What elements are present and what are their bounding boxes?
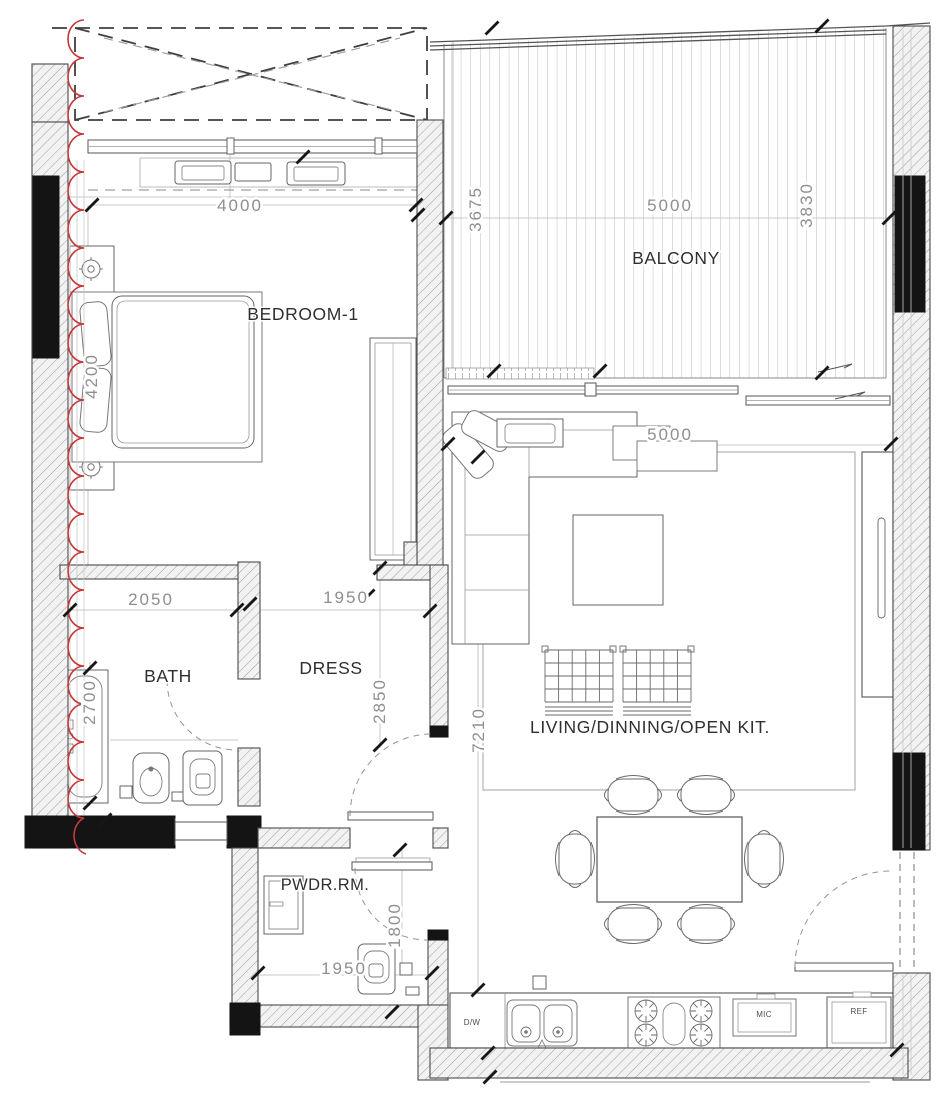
corridor-door-arc (350, 734, 432, 816)
column-black (430, 726, 448, 737)
floor-plan-sheet: BEDROOM-1 BALCONY BATH DRESS LIVING/DINN… (0, 0, 949, 1108)
wall-bath-east (238, 748, 260, 806)
wardrobe (370, 338, 416, 560)
living-label: LIVING/DINNING/OPEN KIT. (530, 717, 770, 737)
microwave-label: MIC (756, 1010, 772, 1019)
wall-powder-west (232, 848, 258, 1007)
floor-drain-symbol (406, 987, 419, 995)
refrigerator-label: REF (851, 1007, 868, 1016)
coffee-table (573, 515, 663, 605)
dim-dress-depth: 2850 (370, 678, 389, 724)
column-black (428, 930, 448, 940)
corridor-door-leaf (348, 812, 433, 820)
dining-chair (678, 776, 735, 815)
balcony-label: BALCONY (632, 248, 720, 268)
dining-chair (678, 905, 735, 944)
dining-chair (605, 905, 662, 944)
dining-table (597, 817, 742, 902)
dim-balcony-width: 5000 (647, 196, 693, 215)
wall-dress-east (430, 565, 448, 737)
bath-label: BATH (144, 666, 192, 686)
wall-bedroom-south (60, 565, 240, 579)
lounge-chair (542, 646, 616, 715)
floor-drain-symbol (120, 786, 132, 798)
stove (628, 997, 720, 1048)
entrance-door-arc (795, 871, 891, 967)
wall-black-band (227, 816, 261, 848)
powder-door-leaf (352, 862, 432, 870)
deck-edge-ticks (446, 368, 594, 379)
dining-chair (556, 831, 595, 888)
dim-powder-width: 1950 (321, 959, 367, 978)
small-fixture (533, 976, 546, 989)
bedroom-window (88, 138, 417, 154)
column-black (895, 176, 925, 312)
floor-drain-symbol (400, 963, 412, 975)
wall-kitchen-south (430, 1048, 908, 1078)
column-black (893, 753, 925, 850)
entrance-door (795, 852, 914, 971)
dim-powder-depth: 1800 (385, 902, 404, 948)
console-table (497, 419, 563, 447)
ac-ledge-dashed-box (52, 28, 427, 120)
refrigerator (827, 992, 891, 1048)
wall-left-top (32, 64, 68, 122)
dim-bedroom-depth: 4200 (82, 353, 101, 399)
wall-bedroom-balcony (417, 120, 443, 567)
kitchen-sink (507, 1000, 577, 1048)
dining-chair (605, 776, 662, 815)
wall-right-upper (893, 26, 930, 850)
bedroom-dresser (88, 158, 418, 190)
bath-door-arc (167, 680, 237, 750)
dim-living-depth: 7210 (469, 707, 488, 753)
wall-powder-north (258, 828, 350, 848)
dining-chair (745, 831, 784, 888)
wall-black-band (25, 816, 175, 848)
dim-living-width: 5000 (647, 425, 693, 444)
cabinet-handle (878, 518, 885, 618)
column-black (33, 176, 59, 358)
dim-bedroom-width: 4000 (217, 196, 263, 215)
rug (483, 452, 855, 790)
dim-bath-depth: 2700 (80, 679, 99, 725)
lounge-chair (620, 646, 694, 715)
tv-cabinet (862, 452, 893, 697)
dishwasher-label: D/W (464, 1018, 481, 1027)
powder-label: PWDR.RM. (281, 876, 369, 894)
wall-powder-north (433, 828, 448, 848)
column-black (230, 1003, 260, 1035)
bidet (133, 753, 169, 803)
dim-balcony-depth-right: 3830 (797, 182, 816, 228)
floor-plan: BEDROOM-1 BALCONY BATH DRESS LIVING/DINN… (0, 0, 949, 1108)
kitchen-counter (450, 992, 893, 1048)
dim-bath-width: 2050 (128, 590, 174, 609)
dress-label: DRESS (299, 658, 362, 678)
dim-dress-width: 1950 (323, 588, 369, 607)
wall-bath-column (238, 562, 260, 679)
dining-set (556, 776, 784, 944)
toilet-bath (183, 751, 222, 805)
wall-stub (404, 542, 417, 567)
floor-drain-symbol (172, 792, 183, 801)
dim-balcony-depth-left: 3675 (466, 186, 485, 232)
entrance-door-leaf (795, 963, 893, 971)
bedroom-label: BEDROOM-1 (247, 304, 358, 324)
